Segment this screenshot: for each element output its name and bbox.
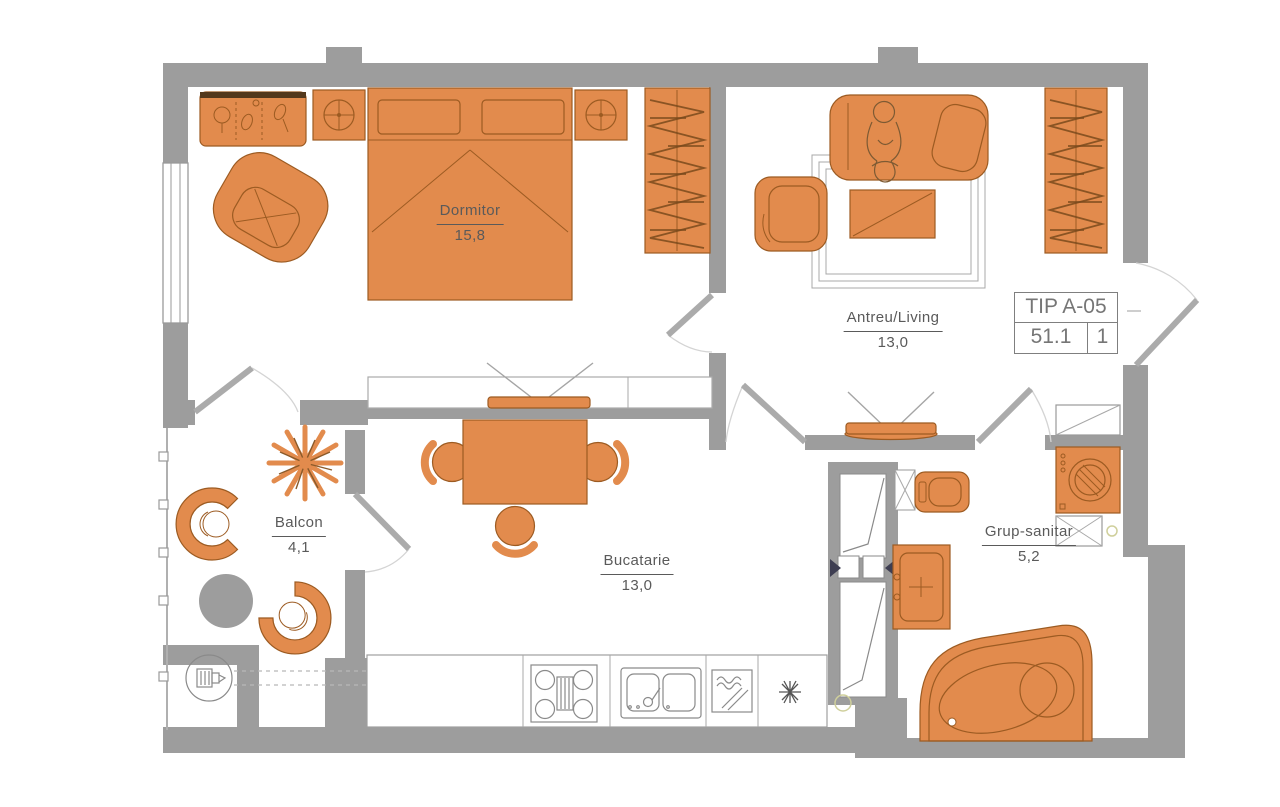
room-area: 13,0 <box>844 332 943 355</box>
total-area-value: 51.1 <box>1015 323 1087 352</box>
room-label-bucatarie: Bucatarie 13,0 <box>601 550 674 597</box>
room-area: 5,2 <box>982 546 1076 569</box>
balcony-kitchen-door <box>355 494 409 572</box>
pillar <box>878 47 918 64</box>
balcony-chair-2 <box>252 575 346 669</box>
plant <box>269 427 341 499</box>
bed <box>368 88 572 300</box>
apartment-type-label: TIP A-05 <box>1015 293 1117 323</box>
room-name: Antreu/Living <box>844 307 943 332</box>
bedroom-window <box>163 163 188 323</box>
floor-plan: Dormitor 15,8 Antreu/Living 13,0 Balcon … <box>0 0 1280 807</box>
room-name: Balcon <box>272 512 326 537</box>
unit-count-value: 1 <box>1087 323 1117 352</box>
nightstand-left <box>313 90 365 140</box>
title-block: TIP A-05 51.1 1 <box>1014 292 1118 354</box>
entrance-door <box>1136 263 1197 365</box>
bedroom-armchair <box>202 141 340 274</box>
room-name: Bucatarie <box>601 550 674 575</box>
bathtub <box>920 625 1092 744</box>
coffee-table <box>850 190 935 238</box>
pillar <box>326 47 362 64</box>
room-name: Dormitor <box>437 200 504 225</box>
living-wardrobe <box>1045 88 1107 253</box>
sofa <box>830 95 989 182</box>
kitchen-door <box>726 385 805 442</box>
bathroom-door <box>978 389 1051 442</box>
balcony-bedroom-door <box>195 368 298 412</box>
toilet <box>895 470 969 512</box>
living-armchair <box>755 177 827 251</box>
hall-shelf <box>1056 405 1120 435</box>
room-label-grup-sanitar: Grup-sanitar 5,2 <box>982 521 1076 568</box>
room-area: 13,0 <box>601 575 674 598</box>
living-tv <box>845 392 937 440</box>
chair-backrest <box>425 444 433 481</box>
room-area: 15,8 <box>437 225 504 248</box>
balcony-chair-1 <box>176 488 237 560</box>
bedroom-wardrobe <box>645 88 710 253</box>
nightstand-right <box>575 90 627 140</box>
bathroom-sink <box>893 545 950 629</box>
dresser <box>200 92 306 146</box>
dining-table <box>425 420 625 554</box>
room-label-dormitor: Dormitor 15,8 <box>437 200 504 247</box>
floor-plan-svg <box>0 0 1280 807</box>
bedroom-door <box>668 295 712 352</box>
washing-machine <box>1056 447 1120 513</box>
room-area: 4,1 <box>272 537 326 560</box>
ventilation-shaft <box>828 462 898 705</box>
fan-symbol <box>779 681 801 703</box>
balcony-railing <box>159 428 168 730</box>
room-label-antreu-living: Antreu/Living 13,0 <box>844 307 943 354</box>
room-label-balcon: Balcon 4,1 <box>272 512 326 559</box>
room-name: Grup-sanitar <box>982 521 1076 546</box>
balcony-table <box>199 574 253 628</box>
